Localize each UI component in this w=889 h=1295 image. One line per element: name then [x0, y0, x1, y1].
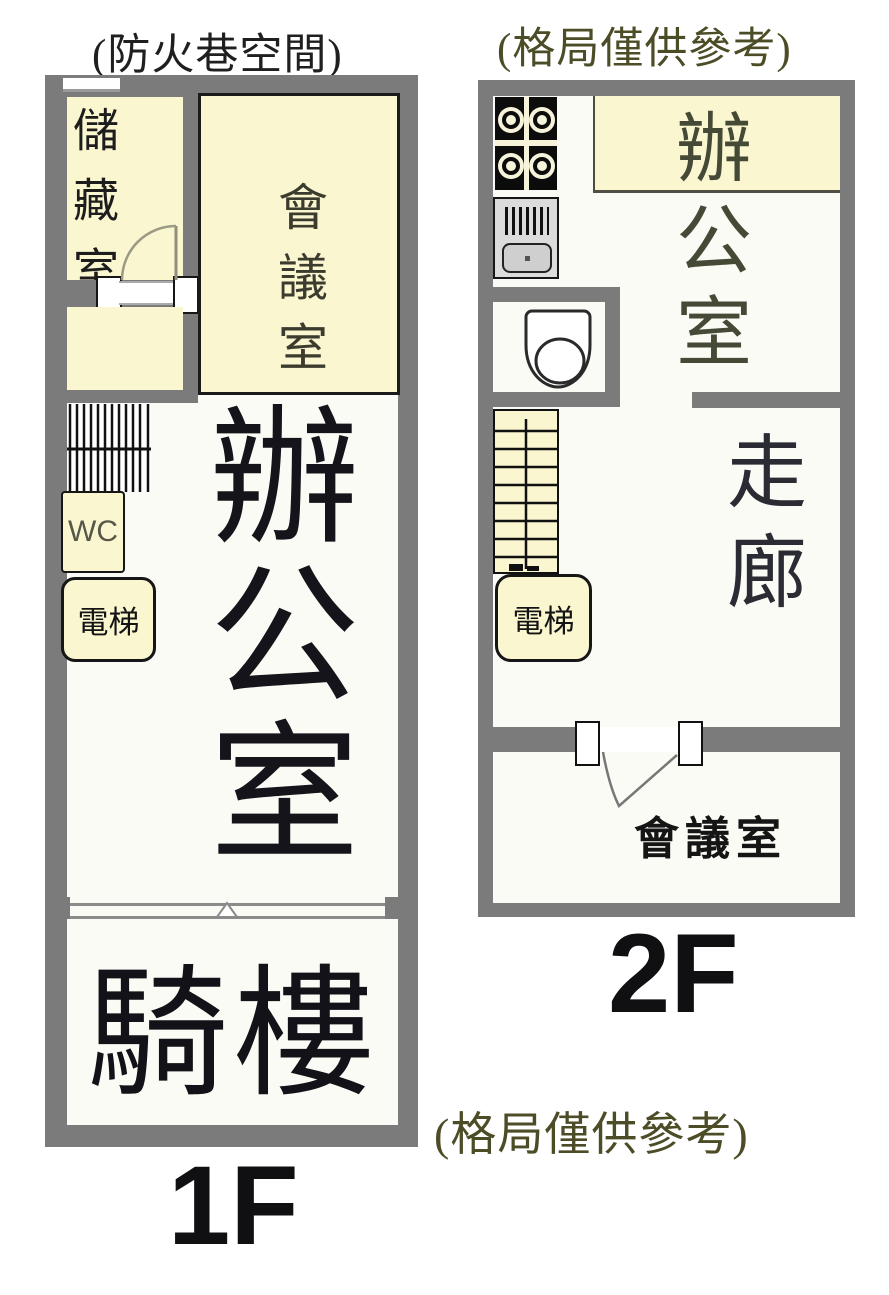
wall-toilet-top: [493, 287, 620, 302]
door-jamb-left-2f: [575, 721, 600, 766]
arcade-1f-label: 騎樓: [67, 955, 398, 1115]
wall-office-corridor: [692, 392, 840, 408]
elevator-2f: 電梯: [495, 574, 592, 662]
meeting-room-2f-label: 會議室: [634, 802, 787, 867]
layout-reference-note-bottom: (格局僅供參考): [434, 1098, 749, 1164]
meeting-room-1f-label: 會議室: [274, 181, 324, 391]
office-1f-label: 辦公室: [195, 398, 345, 872]
sink-icon: [493, 197, 559, 279]
stairs-2f-icon: [493, 409, 559, 574]
plan-1f: 儲藏室 會議室: [45, 75, 418, 1147]
wall-toilet-bottom: [493, 392, 620, 407]
sink-basin: [502, 243, 552, 273]
floorplan-page: (防火巷空間) (格局僅供參考) 儲藏室 會議室: [0, 0, 889, 1295]
stairs-icon: [67, 404, 151, 492]
room-wc-1f: WC: [61, 491, 125, 573]
room-vestibule-1f: [67, 307, 183, 390]
elevator-2f-label: 電梯: [513, 596, 575, 641]
floor1-label: 1F: [168, 1150, 299, 1262]
stove-icon: [495, 97, 557, 190]
door-jamb-right-2f: [678, 721, 703, 766]
entry-marker-icon: [215, 901, 239, 919]
storefront-stub-right: [385, 897, 418, 919]
wc-label: WC: [68, 515, 118, 549]
office-2f-label: 辦公室: [668, 108, 744, 384]
room-meeting-1f: 會議室: [198, 93, 400, 395]
toilet-icon: [516, 307, 600, 391]
floor2-label: 2F: [608, 918, 739, 1030]
door-swing-icon: [108, 220, 188, 284]
elevator-1f: 電梯: [61, 577, 156, 662]
wall-vestibule-bottom: [45, 390, 198, 403]
wall-toilet-right: [605, 287, 620, 407]
sink-drainboard: [505, 207, 549, 235]
door-opening-1f: [119, 281, 173, 305]
door-opening-2f: [598, 727, 678, 752]
fire-lane-note: (防火巷空間): [92, 20, 343, 82]
storefront-stub-left: [45, 897, 70, 919]
layout-reference-note-top: (格局僅供參考): [497, 14, 792, 76]
elevator-1f-label: 電梯: [78, 597, 140, 642]
plan-2f: 辦公室: [478, 80, 855, 917]
corridor-2f-label: 走廊: [719, 430, 799, 630]
sink-drain: [525, 256, 530, 261]
window-1f: [63, 78, 120, 92]
